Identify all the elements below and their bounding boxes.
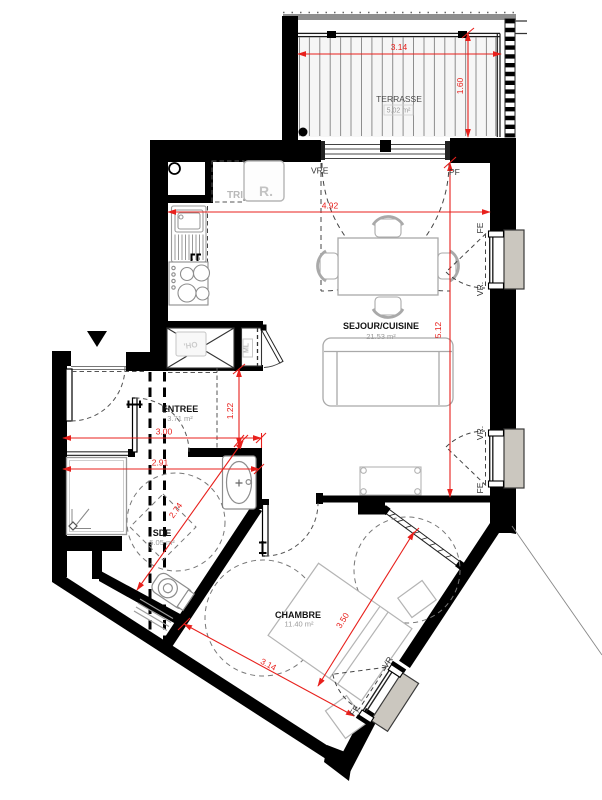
svg-text:3.14: 3.14 (391, 42, 408, 52)
svg-text:21.53 m²: 21.53 m² (366, 332, 396, 341)
svg-text:TERRASSE: TERRASSE (376, 94, 422, 104)
svg-text:2.91: 2.91 (152, 458, 169, 468)
svg-text:TRI: TRI (227, 190, 243, 201)
svg-text:3.71 m²: 3.71 m² (167, 414, 193, 423)
svg-text:FE: FE (475, 222, 485, 233)
svg-text:5.12: 5.12 (433, 321, 443, 338)
svg-text:4.92: 4.92 (322, 201, 339, 211)
svg-text:5.05 m²: 5.05 m² (149, 538, 175, 547)
svg-text:11.40 m²: 11.40 m² (284, 620, 314, 629)
svg-text:1.22: 1.22 (225, 402, 235, 419)
svg-text:FE: FE (475, 482, 485, 493)
svg-text:VR.: VR. (475, 426, 485, 440)
svg-text:'HO: 'HO (183, 340, 198, 351)
svg-text:1.60: 1.60 (455, 77, 465, 94)
svg-text:VR.: VR. (475, 282, 485, 296)
svg-text:ML: ML (244, 342, 251, 353)
svg-text:SEJOUR/CUISINE: SEJOUR/CUISINE (343, 321, 419, 331)
svg-text:SDE: SDE (153, 528, 172, 538)
svg-text:3.00: 3.00 (156, 427, 173, 437)
svg-text:PF: PF (449, 167, 460, 177)
svg-text:CHAMBRE: CHAMBRE (275, 610, 321, 620)
svg-text:VRE: VRE (311, 166, 329, 176)
svg-text:5.02 m²: 5.02 m² (387, 108, 411, 115)
svg-text:R.: R. (259, 183, 273, 199)
svg-text:ENTREE: ENTREE (162, 404, 199, 414)
